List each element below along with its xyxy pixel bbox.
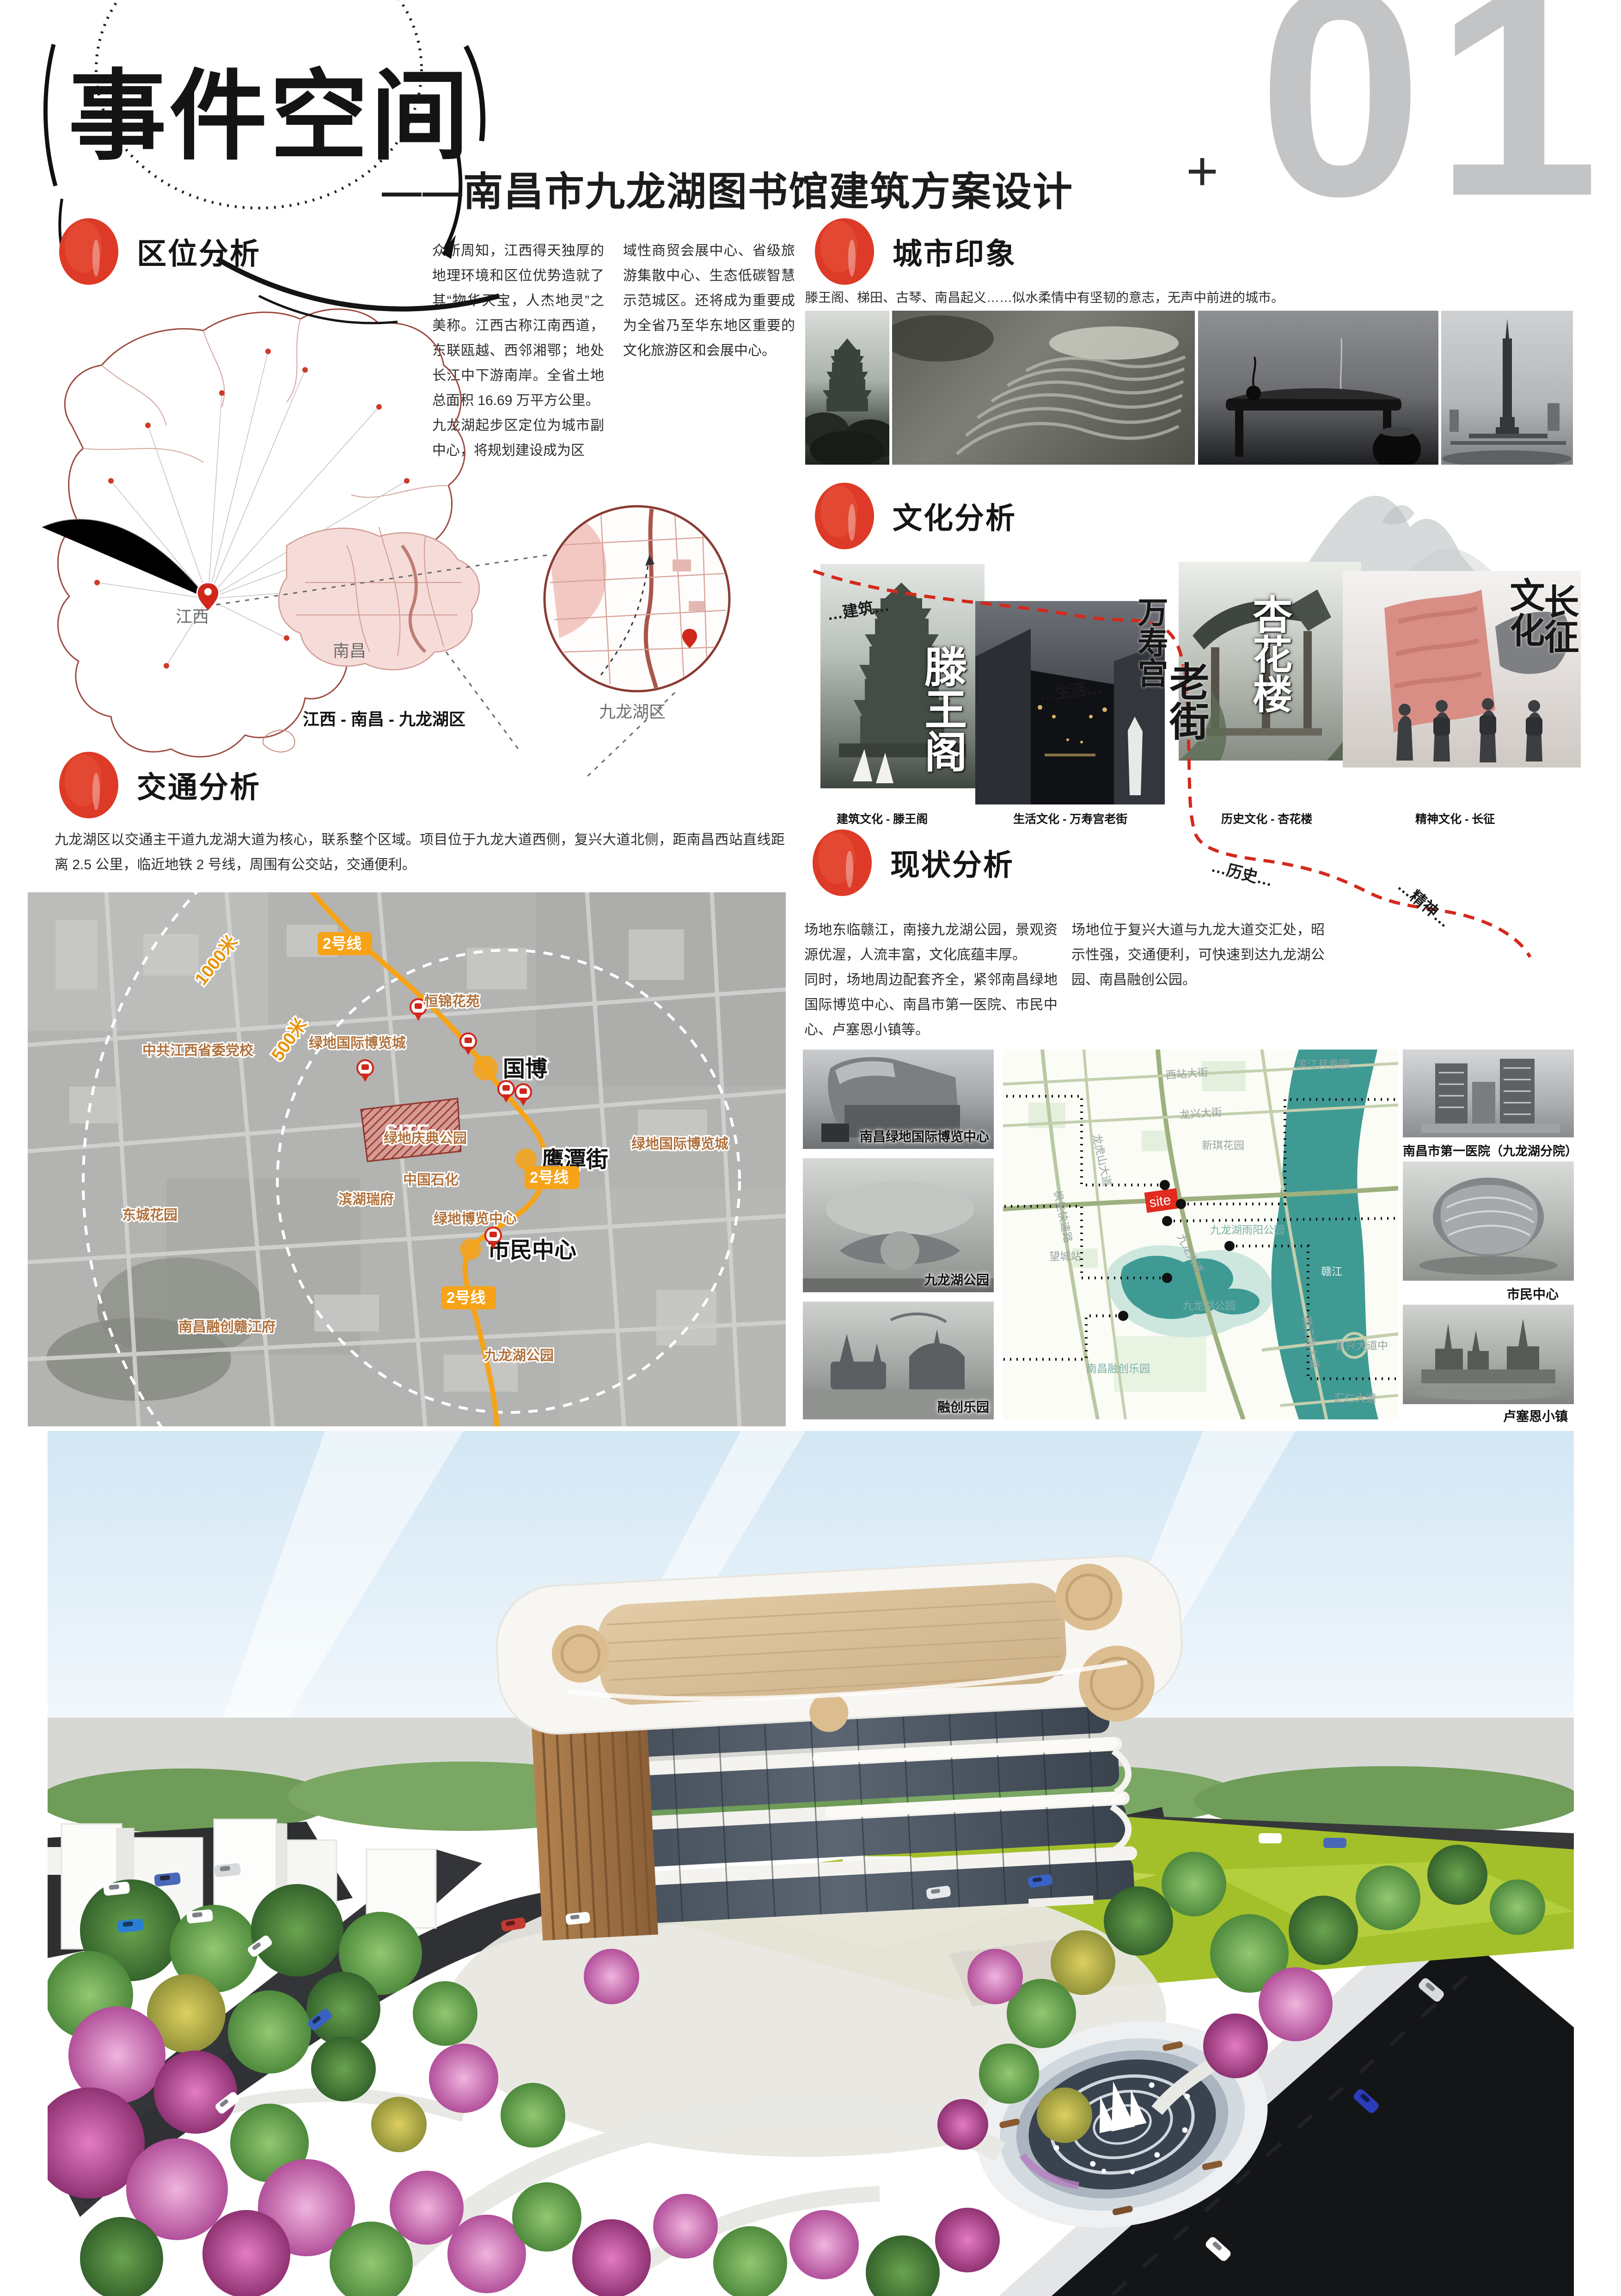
section-header-location: 区位分析	[55, 216, 261, 287]
status-photo-label: 九龙湖公园	[924, 1270, 989, 1289]
red-seal-icon	[55, 750, 125, 820]
place-qingdian: 绿地庆典公园	[384, 1131, 467, 1146]
plus-mark: +	[1186, 143, 1218, 199]
red-seal-icon	[811, 216, 881, 287]
nanchang-map	[279, 527, 479, 670]
svg-text:site: site	[1148, 1192, 1172, 1210]
jiangxi-pin-icon	[197, 583, 219, 611]
section-title: 城市印象	[893, 230, 1016, 273]
calligraphy-wenhua: 文化	[1506, 577, 1542, 647]
calligraphy-col: 长征	[1539, 583, 1578, 654]
place-shihua: 中国石化	[403, 1173, 459, 1188]
road-huiren: 汇仁大道	[1334, 1392, 1376, 1404]
status-photo-label: 融创乐园	[937, 1397, 989, 1416]
presentation-board: 事件空间 ——南昌市九龙湖图书馆建筑方案设计 01 + 区位分析 城市印象 文化…	[0, 0, 1621, 2296]
jiulonghu-circle-map	[544, 506, 729, 691]
label-jiulonghu: 九龙湖区	[599, 703, 666, 721]
red-seal-icon	[55, 216, 125, 287]
line2-badge: 2号线	[525, 1166, 579, 1189]
poster-subtitle: ——南昌市九龙湖图书馆建筑方案设计	[382, 159, 1073, 217]
place-bolan-left: 绿地国际博览城	[309, 1036, 406, 1051]
location-map-caption: 江西 - 南昌 - 九龙湖区	[303, 710, 465, 729]
section-title: 交通分析	[137, 764, 261, 806]
status-photo-label: 市民中心	[1507, 1284, 1559, 1303]
status-photo-lucerne-town	[1403, 1305, 1574, 1404]
photo-tengwang-pavilion	[805, 311, 889, 465]
poi-wangcheng: 望城站	[1049, 1250, 1081, 1262]
photo-bayi-monument	[1441, 311, 1573, 465]
line2-badge: 2号线	[441, 1286, 496, 1309]
place-dongcheng: 东城花园	[122, 1207, 177, 1223]
section-header-impression: 城市印象	[811, 216, 1016, 287]
calligraphy-wanshougong: 万寿宫	[1135, 596, 1166, 688]
station-shimin: 市民中心	[488, 1238, 576, 1263]
photo-guqin	[1198, 311, 1438, 465]
poi-jlhpark: 九龙湖公园	[1182, 1300, 1236, 1312]
status-photo-label: 南昌市第一医院（九龙湖分院）	[1403, 1141, 1578, 1159]
photo-terraced-fields	[892, 311, 1195, 465]
section-header-traffic: 交通分析	[55, 750, 261, 820]
status-photo-expo-center: 南昌绿地国际博览中心	[803, 1050, 994, 1149]
place-rongchuangfu: 南昌融创赣江府	[178, 1319, 275, 1335]
culture-flow-line	[786, 509, 1621, 1017]
poi-binjiang: 滨江月季园	[1297, 1058, 1350, 1070]
road-fuxing: 复兴大道中	[1335, 1339, 1388, 1351]
map-connector	[446, 652, 520, 751]
place-bolan-center: 绿地博览中心	[434, 1211, 517, 1227]
calligraphy-col: 文化	[1505, 577, 1544, 647]
label-nanchang: 南昌	[333, 642, 366, 660]
calligraphy-col: 老街	[1163, 661, 1208, 741]
river-ganjiang: 赣江	[1321, 1265, 1342, 1277]
poi-rongchuang: 南昌融创乐园	[1086, 1363, 1150, 1375]
status-photo-jiulonghu-park: 九龙湖公园	[803, 1158, 994, 1292]
status-map: site 西站大街 龙兴大街 滨江月季园 枫生快速路 龙虎山大道 九龙大道 九龙…	[1003, 1050, 1398, 1419]
site-area: SITE	[361, 1099, 461, 1161]
calligraphy-changzheng: 长征	[1540, 583, 1576, 654]
status-photo-hospital	[1403, 1050, 1574, 1137]
calligraphy-col: 万寿宫	[1133, 596, 1168, 688]
section-title: 区位分析	[137, 230, 261, 273]
place-jlh-park: 九龙湖公园	[484, 1348, 554, 1363]
poi-xinqi: 新琪花园	[1202, 1139, 1244, 1151]
calligraphy-xinghualou: 杏花楼	[1248, 594, 1289, 713]
calligraphy-laojie: 老街	[1165, 661, 1205, 741]
calligraphy-tengwangge: 滕王阁	[920, 645, 963, 773]
traffic-map: 国博 鹰潭街 市民中心 2号线 2号线 2号线 1000米 500米 SITE	[28, 892, 786, 1426]
svg-text:2号线: 2号线	[323, 935, 361, 952]
traffic-paragraph: 九龙湖区以交通主干道九龙湖大道为核心，联系整个区域。项目位于九龙大道西侧，复兴大…	[55, 828, 785, 878]
impression-desc: 滕王阁、梯田、古琴、南昌起义……似水柔情中有坚韧的意志，无声中前进的城市。	[805, 288, 1284, 306]
svg-text:2号线: 2号线	[530, 1169, 569, 1186]
library-rendering	[48, 1431, 1574, 2296]
place-binhu: 滨湖瑞府	[338, 1191, 394, 1207]
page-number: 01	[1258, 0, 1611, 240]
status-photo-label: 卢塞恩小镇	[1503, 1406, 1568, 1425]
place-bolan-right: 绿地国际博览城	[631, 1136, 728, 1152]
status-photo-label: 南昌绿地国际博览中心	[860, 1127, 989, 1145]
station-guobo: 国博	[503, 1057, 547, 1081]
status-photo-sunac-land: 融创乐园	[803, 1301, 994, 1419]
label-jiangxi: 江西	[176, 608, 209, 626]
poi-yuyang: 九龙湖雨阳公园	[1210, 1224, 1285, 1236]
svg-text:2号线: 2号线	[447, 1289, 485, 1306]
status-photo-civic-center	[1403, 1161, 1574, 1281]
poster-title: 事件空间	[68, 37, 471, 179]
line2-badge: 2号线	[318, 932, 372, 955]
place-hengjin: 恒锦花苑	[424, 994, 480, 1009]
place-dangxiao: 中共江西省委党校	[142, 1043, 253, 1058]
